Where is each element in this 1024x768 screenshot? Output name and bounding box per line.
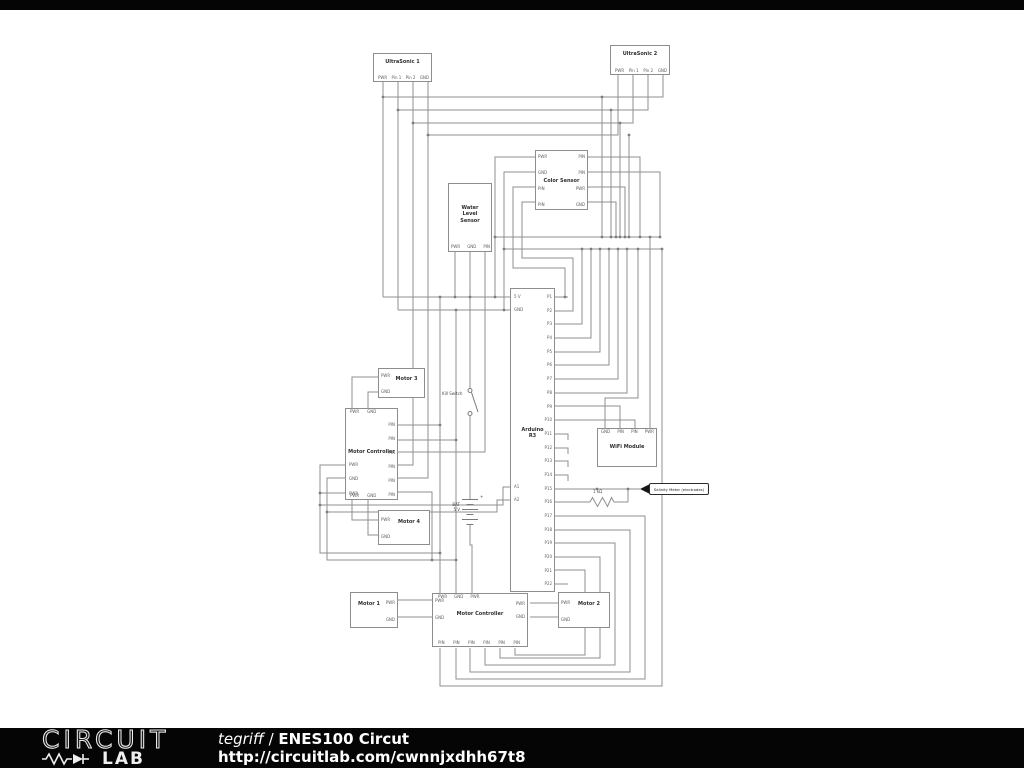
pin-label: P19 <box>544 541 552 545</box>
battery-label: BAT 5 V <box>444 503 460 513</box>
pin-label: Pin 2 <box>406 76 416 80</box>
pin-label: GND <box>454 595 463 599</box>
component-motor-1[interactable]: Motor 1 PWRGND <box>350 592 398 628</box>
component-water-level-sensor[interactable]: Water Level Sensor PWRGNDPIN <box>448 183 492 252</box>
pin-label: P21 <box>544 569 552 573</box>
author-name[interactable]: tegriff <box>218 730 264 748</box>
pin-row: PWRPin 1Pin 2GND <box>378 76 429 80</box>
pin-label: PWR <box>350 494 359 498</box>
pin-label: PIN <box>538 187 545 191</box>
pin-label: PWR <box>576 187 585 191</box>
pin-label: PIN <box>388 423 395 427</box>
pin-label: PIN <box>483 641 490 645</box>
pin-label: P17 <box>544 514 552 518</box>
pin-column: PINPINPWRGND <box>576 155 585 207</box>
pin-row: PWRGNDPWR <box>438 595 479 599</box>
component-arduino[interactable]: Arduino R3 5 V GND A1 A2 P1P2P3P4P5P6P7P… <box>510 288 555 592</box>
pin-label: GND <box>367 410 376 414</box>
pin-column: PWRGND <box>381 518 390 539</box>
component-motor-3[interactable]: Motor 3 PWRGND <box>378 368 425 398</box>
pin-label: PWR <box>435 599 444 603</box>
pin-label: P9 <box>547 405 552 409</box>
pin-column: PWRGND <box>561 601 570 622</box>
component-title: Motor Controller <box>433 611 527 617</box>
pin-label: P11 <box>544 432 552 436</box>
pin-label: PIN <box>388 465 395 469</box>
component-ultrasonic-1[interactable]: UltraSonic 1 PWRPin 1Pin 2GND <box>373 53 432 82</box>
pin-label: GND <box>514 308 523 312</box>
pin-label: P15 <box>544 487 552 491</box>
pin-label: GND <box>435 616 444 620</box>
pin-label: P6 <box>547 363 552 367</box>
pin-label: Pin 2 <box>643 69 653 73</box>
pin-row: PWRGND <box>350 410 376 414</box>
pin-label: P10 <box>544 418 552 422</box>
pin-label: PWR <box>349 463 358 467</box>
pin-label: Pin 1 <box>392 76 402 80</box>
pin-column: P1P2P3P4P5P6P7P8P9P10P11P12P13P14P15P16P… <box>544 295 552 587</box>
pin-label: GND <box>386 618 395 622</box>
pin-label: PIN <box>538 203 545 207</box>
component-title: UltraSonic 2 <box>611 51 669 57</box>
pin-label: P20 <box>544 555 552 559</box>
pin-label: PIN <box>388 479 395 483</box>
component-motor-4[interactable]: Motor 4 PWRGND <box>378 510 430 545</box>
component-motor-controller-bottom[interactable]: PWRGNDPWR Motor Controller PWRGND PWRGND… <box>432 593 528 647</box>
pin-label: GND <box>367 494 376 498</box>
pin-column: PWRGND <box>381 374 390 394</box>
pin-column: PWRGND <box>386 601 395 622</box>
pin-label: GND <box>381 390 390 394</box>
resistor-diode-icon <box>42 752 102 766</box>
pin-label: PWR <box>645 430 654 434</box>
pin-label: P14 <box>544 473 552 477</box>
pin-column: PINPINPINPINPINPIN <box>388 423 395 497</box>
pin-label: PIN <box>483 245 490 249</box>
pin-row: GNDPINPINPWR <box>601 430 654 434</box>
pin-label: PWR <box>470 595 479 599</box>
pin-label: PIN <box>388 493 395 497</box>
pin-label: PWR <box>451 245 460 249</box>
pin-label: GND <box>420 76 429 80</box>
pin-label: GND <box>349 477 358 481</box>
pin-label: GND <box>516 615 525 619</box>
pin-column: PWRGNDPINPIN <box>538 155 547 207</box>
pin-label: GND <box>381 535 390 539</box>
pin-column: PWRGND <box>435 599 444 620</box>
component-wifi-module[interactable]: GNDPINPINPWR WiFi Module <box>597 428 657 467</box>
share-info: tegriff / ENES100 Circut http://circuitl… <box>218 730 526 766</box>
battery-plus-label: + <box>480 495 483 500</box>
circuit-title: ENES100 Circut <box>278 730 409 748</box>
kill-switch-label: Kill Switch <box>442 392 462 397</box>
pin-row: PWRPin 1Pin 2GND <box>615 69 667 73</box>
circuit-url[interactable]: http://circuitlab.com/cwnnjxdhh67t8 <box>218 748 526 766</box>
pin-column: PWRGND <box>516 602 525 619</box>
pin-label: P1 <box>547 295 552 299</box>
component-title: WiFi Module <box>598 444 656 450</box>
resistor-value-label: 1 kΩ <box>593 490 602 495</box>
pin-label: GND <box>467 245 476 249</box>
pin-label: 5 V <box>514 295 521 299</box>
circuit-byline: tegriff / ENES100 Circut <box>218 730 526 748</box>
pin-label: P12 <box>544 446 552 450</box>
pin-label: P8 <box>547 391 552 395</box>
pin-label: PIN <box>388 437 395 441</box>
pin-label: Pin 1 <box>629 69 639 73</box>
pin-label: GND <box>576 203 585 207</box>
logo-lab-text: LAB <box>102 751 145 767</box>
pin-label: PWR <box>386 601 395 605</box>
pin-label: A2 <box>514 498 519 502</box>
pin-label: PIN <box>617 430 624 434</box>
logo-circuit-text: CIRCUIT <box>42 729 182 751</box>
pin-label: P3 <box>547 322 552 326</box>
pin-label: PIN <box>468 641 475 645</box>
pin-label: PIN <box>631 430 638 434</box>
pin-label: GND <box>658 69 667 73</box>
pin-label: PWR <box>516 602 525 606</box>
pin-row: PINPINPINPINPINPIN <box>438 641 520 645</box>
pin-label: PWR <box>538 155 547 159</box>
pin-label: PWR <box>381 518 390 522</box>
pin-label: PIN <box>578 155 585 159</box>
pin-row: PWRGND <box>350 494 376 498</box>
kill-switch-symbol[interactable] <box>468 389 478 416</box>
component-title: Water Level Sensor <box>449 205 491 224</box>
pin-label: PWR <box>381 374 390 378</box>
pin-label: PIN <box>498 641 505 645</box>
footer-bar: CIRCUIT LAB tegriff / ENES100 Circut htt… <box>0 728 1024 768</box>
component-ultrasonic-2[interactable]: UltraSonic 2 PWRPin 1Pin 2GND <box>610 45 670 75</box>
component-motor-2[interactable]: Motor 2 PWRGND <box>558 592 610 628</box>
pin-label: GND <box>561 618 570 622</box>
pin-label: PIN <box>388 451 395 455</box>
pin-label: GND <box>538 171 547 175</box>
pin-label: PWR <box>350 410 359 414</box>
pin-label: P18 <box>544 528 552 532</box>
pin-label: P2 <box>547 309 552 313</box>
pin-label: PWR <box>378 76 387 80</box>
pin-label: P4 <box>547 336 552 340</box>
pin-label: PIN <box>438 641 445 645</box>
pin-label: P22 <box>544 582 552 586</box>
circuitlab-share-page: UltraSonic 1 PWRPin 1Pin 2GND UltraSonic… <box>0 0 1024 768</box>
pin-label: PWR <box>561 601 570 605</box>
pin-label: GND <box>601 430 610 434</box>
component-title: UltraSonic 1 <box>374 59 431 65</box>
pin-column: PWRGNDPWR <box>349 463 358 496</box>
circuitlab-logo[interactable]: CIRCUIT LAB <box>42 729 182 767</box>
pin-label: P5 <box>547 350 552 354</box>
pin-label: P13 <box>544 459 552 463</box>
component-color-sensor[interactable]: Color Sensor PWRGNDPINPIN PINPINPWRGND <box>535 150 588 210</box>
pin-label: P16 <box>544 500 552 504</box>
pin-label: A1 <box>514 485 519 489</box>
pin-label: PIN <box>453 641 460 645</box>
salinity-meter-flag[interactable]: Salinity Meter (electrodes) <box>649 483 709 495</box>
pin-label: PIN <box>578 171 585 175</box>
pin-label: PWR <box>615 69 624 73</box>
component-motor-controller-left[interactable]: PWRGND Motor Controller PINPINPINPINPINP… <box>345 408 398 500</box>
pin-row: PWRGNDPIN <box>451 245 490 249</box>
pin-label: P7 <box>547 377 552 381</box>
pin-label: PIN <box>513 641 520 645</box>
